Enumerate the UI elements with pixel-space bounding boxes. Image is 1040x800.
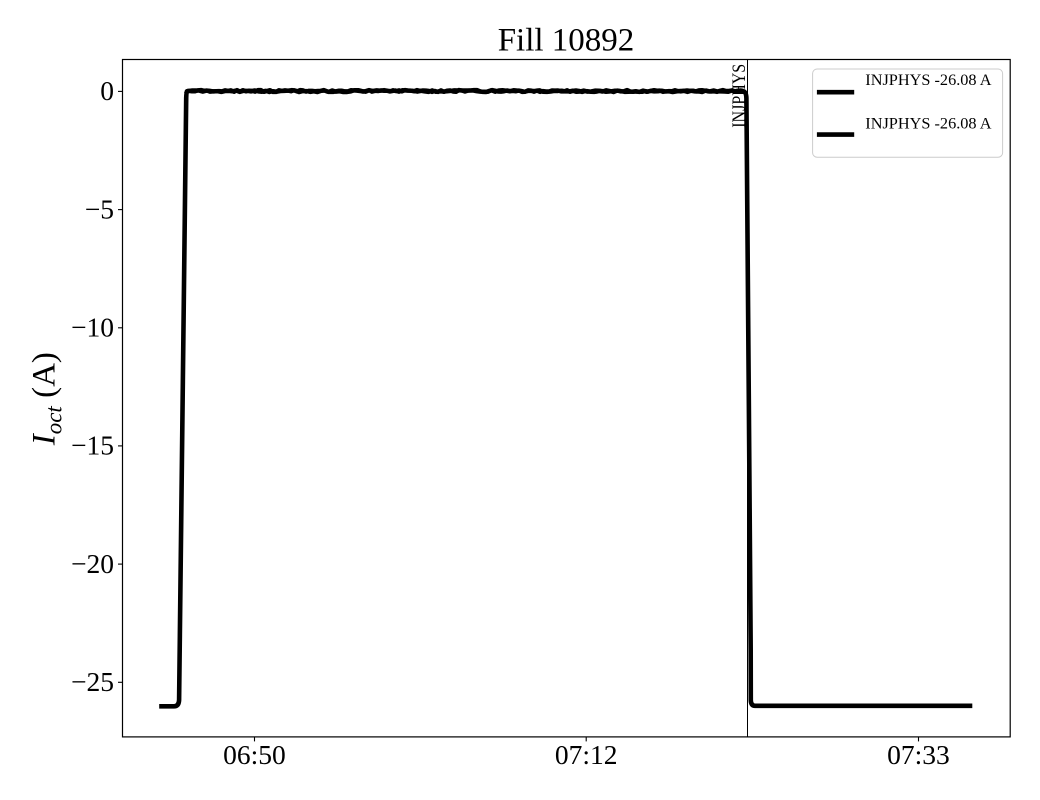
svg-text:−25: −25 [71,666,114,697]
svg-text:0: 0 [100,75,114,106]
svg-text:−10: −10 [71,312,114,343]
svg-text:−20: −20 [71,548,114,579]
svg-text:07:12: 07:12 [555,739,618,770]
svg-text:INJPHYS -26.08 A: INJPHYS -26.08 A [865,70,991,89]
svg-text:06:50: 06:50 [223,739,286,770]
svg-text:Fill 10892: Fill 10892 [498,23,635,59]
svg-text:INJPHYS -26.08 A: INJPHYS -26.08 A [865,113,991,132]
svg-text:−15: −15 [71,430,114,461]
svg-text:−5: −5 [85,193,114,224]
svg-text:07:33: 07:33 [887,739,950,770]
